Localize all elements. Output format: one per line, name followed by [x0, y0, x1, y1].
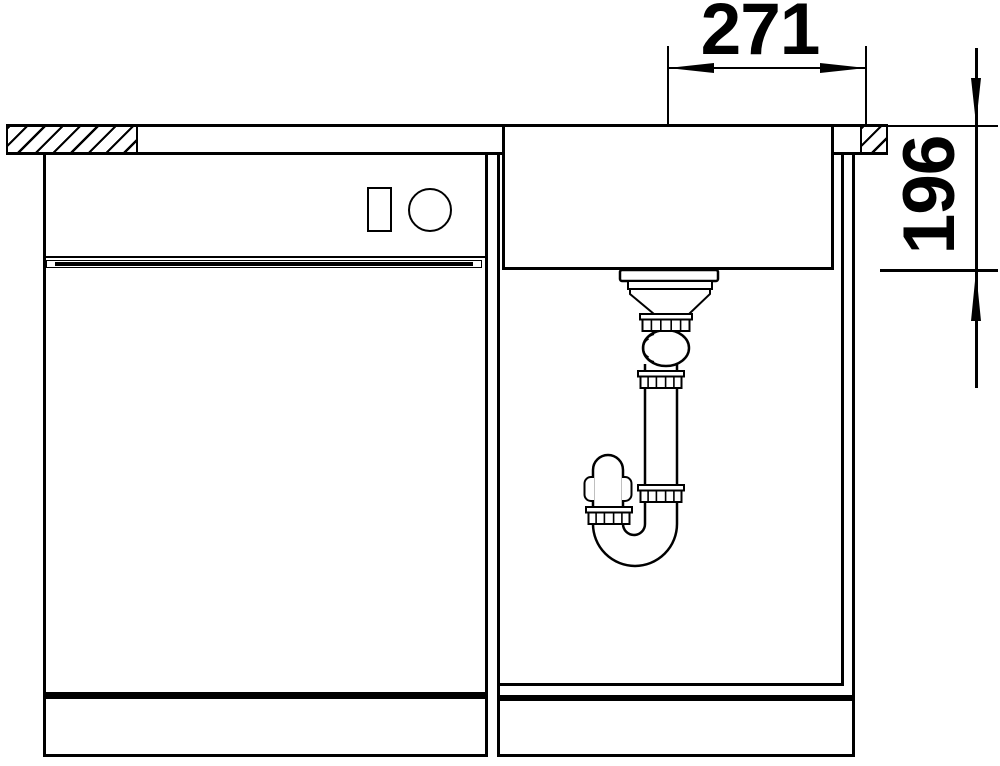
dimension-arrow-right-icon: [820, 63, 866, 73]
riser-compression-ear-right: [622, 477, 632, 501]
riser-compression-ear-left: [585, 477, 595, 501]
drain-flange: [620, 270, 718, 281]
slip-nut-strainer: [640, 314, 692, 331]
dimension-arrow-up-icon: [971, 271, 981, 321]
strainer-cup: [630, 289, 710, 314]
slip-nut-upper: [638, 371, 684, 388]
extension-line-right-edge: [865, 46, 867, 124]
dimension-label-271: 271: [660, 0, 860, 68]
dimension-arrow-down-icon: [971, 78, 981, 124]
extension-line-worktop-top: [888, 125, 998, 127]
dimension-arrow-left-icon: [668, 63, 714, 73]
drain-flange-step: [628, 281, 712, 289]
technical-drawing-canvas: 271 196: [0, 0, 1000, 766]
extension-line-drain-center: [667, 46, 669, 124]
drain-plumbing-assembly: [0, 0, 1000, 766]
p-trap-and-tailpipe: [593, 364, 677, 566]
slip-nut-trap-inlet: [638, 485, 684, 502]
slip-nut-riser: [586, 507, 632, 524]
